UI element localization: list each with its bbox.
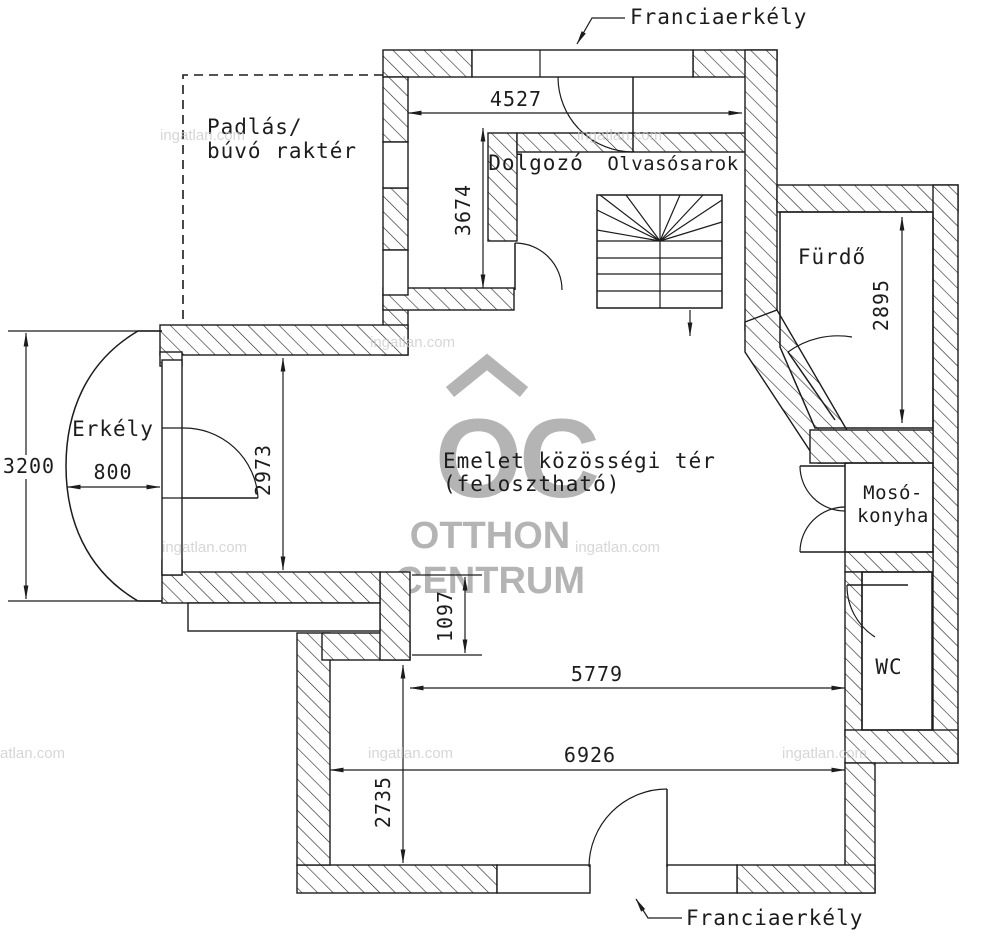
dim-800: 800 (93, 460, 132, 484)
study-door (515, 243, 562, 290)
wall-bath-north (777, 185, 958, 212)
wall-laundry-wc-divider (845, 552, 933, 572)
dim-2973: 2973 (251, 444, 275, 496)
label-french-balcony-top: Franciaerkély (630, 5, 807, 29)
wall-west-upper-seg1 (383, 77, 408, 142)
watermark-ingatlan: ingatlan.com (162, 539, 247, 556)
dim-2735: 2735 (371, 776, 395, 828)
label-wc: WC (875, 655, 902, 679)
attic-window-1 (383, 142, 408, 188)
watermark-otthon: OTTHON (410, 515, 570, 557)
dim-4527: 4527 (490, 87, 542, 111)
step-ledge (188, 603, 380, 631)
french-door-bottom (589, 789, 667, 867)
wall-bath-laundry-divider (810, 430, 933, 463)
wall-east-upper (745, 50, 777, 330)
label-common-2: (felosztható) (443, 472, 620, 496)
label-laundry-1: Mosó- (863, 482, 923, 504)
watermark-centrum: CENTRUM (395, 560, 585, 602)
floorplan-drawing: OC OTTHON CENTRUM (0, 0, 981, 940)
watermark-ingatlan: ingatlan.com (575, 539, 660, 556)
watermark-ingatlan: ingatlan.com (0, 745, 65, 762)
label-french-balcony-bottom: Franciaerkély (686, 906, 863, 930)
wall-west-upper-seg2 (383, 188, 408, 250)
laundry-double-door (800, 466, 845, 552)
wall-west-lower (297, 633, 330, 865)
wall-south-left-seg (297, 865, 497, 893)
staircase (597, 195, 722, 336)
french-window-bottom-1 (497, 865, 590, 893)
watermark-ingatlan: ingatlan.com (160, 127, 245, 144)
dim-1097: 1097 (433, 590, 457, 642)
french-window-top (472, 50, 693, 77)
dim-6926: 6926 (564, 743, 616, 767)
floorplan-page: OC OTTHON CENTRUM (0, 0, 981, 940)
wc-outline (862, 572, 932, 730)
dim-3674: 3674 (451, 184, 475, 236)
label-study: Dolgozó (488, 151, 584, 175)
wall-south-right-seg (737, 865, 875, 893)
balcony-door (182, 428, 258, 498)
label-balcony: Erkély (72, 417, 154, 441)
label-common-1: Emelet közösségi tér (443, 449, 716, 473)
wall-common-south (162, 572, 380, 603)
dim-5779: 5779 (571, 662, 623, 686)
watermark-ingatlan: ingatlan.com (368, 745, 453, 762)
wall-study-divider (488, 133, 517, 241)
french-window-bottom-2 (667, 865, 737, 893)
site-watermarks: ingatlan.com ingatlan.com ingatlan.com i… (0, 127, 867, 762)
attic-window-2 (383, 250, 408, 295)
label-laundry-2: konyha (857, 505, 929, 527)
watermark-ingatlan: ingatlan.com (370, 334, 455, 351)
leader-french-bottom (636, 899, 682, 918)
wall-top-left-seg (383, 50, 472, 77)
dim-3200: 3200 (3, 454, 55, 478)
attic-dashed-boundary (183, 75, 383, 325)
watermark-ingatlan: ingatlan.com (577, 127, 662, 144)
wall-step-vertical (380, 572, 410, 660)
watermark-ingatlan: ingatlan.com (782, 745, 867, 762)
label-bathroom: Fürdő (798, 245, 866, 269)
logo-roof-icon (450, 362, 524, 392)
wall-east-outer (933, 185, 958, 763)
label-reading-corner: Olvasósarok (607, 153, 738, 175)
leader-french-top (577, 18, 625, 44)
dim-2895: 2895 (869, 279, 893, 331)
